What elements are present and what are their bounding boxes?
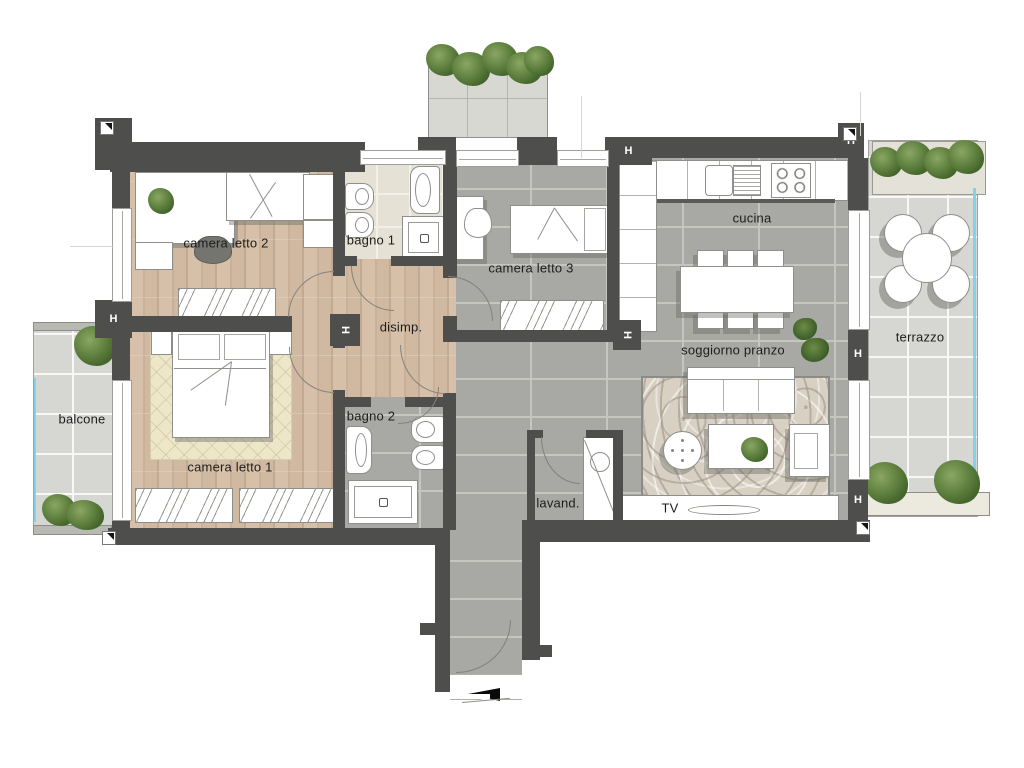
balcone-glass-railing [34, 378, 36, 522]
room-label-camera-letto-3: camera letto 3 [488, 261, 573, 276]
wall-top-left-wing [110, 142, 365, 172]
toilet-icon [345, 183, 374, 210]
bidet-icon [411, 445, 445, 470]
steel-column-icon: H [613, 320, 641, 350]
pillow-icon [584, 208, 606, 251]
pillow-icon [224, 334, 266, 360]
sofa-cushion-divider [758, 380, 759, 411]
armchair-icon [789, 424, 830, 477]
wall-left-mid [112, 338, 130, 380]
wall-bagno1-east [443, 150, 457, 278]
steel-column-icon: H [605, 137, 652, 165]
room-label-bagno-1: bagno 1 [347, 233, 395, 248]
terrazzo-bush-icon [864, 462, 908, 504]
wall-entrance-east [522, 520, 540, 660]
shower-icon [402, 216, 445, 259]
room-label-camera-letto-1: camera letto 1 [187, 460, 272, 475]
wall-stub-outside [540, 645, 552, 657]
window [112, 208, 132, 302]
nightstand-icon [303, 174, 335, 220]
bathroom-sink-icon [410, 166, 440, 214]
wall-column-top [517, 137, 557, 165]
room-label-tv: TV [661, 501, 678, 516]
room-label-soggiorno-pranzo: soggiorno pranzo [681, 343, 785, 358]
room-label-balcone: balcone [59, 412, 106, 427]
room-label-bagno-2: bagno 2 [347, 409, 395, 424]
section-marker-icon [856, 521, 870, 535]
nightstand-icon [151, 330, 172, 355]
sofa-cushion-divider [723, 380, 724, 411]
floor-plan: H H H H H H H camera letto 2 bagno 1 cam… [0, 0, 1024, 768]
wall-camera3-south [443, 330, 619, 342]
construction-line [581, 96, 582, 158]
room-label-camera-letto-2: camera letto 2 [183, 236, 268, 251]
wall-partition-bedrooms [112, 316, 292, 332]
wall-stub-outside [420, 623, 435, 635]
wall-south-left-wing [108, 528, 448, 545]
wall-east-a [848, 158, 868, 210]
wall-entrance-west [435, 528, 450, 692]
section-marker-icon [100, 121, 114, 135]
window [360, 150, 446, 165]
wall-camera1-east-b [333, 390, 345, 532]
room-label-disimpegno: disimp. [380, 320, 423, 335]
construction-line [70, 246, 114, 247]
section-marker-icon [102, 531, 116, 545]
wall-corridor-west [443, 393, 456, 530]
sheet-line [174, 368, 266, 369]
stove-icon [771, 163, 811, 198]
room-label-lavanderia: lavand. [536, 496, 579, 511]
bathroom-sink-icon [346, 426, 372, 474]
desk-plant-icon [148, 188, 174, 214]
wall-lavand-west [527, 430, 535, 522]
counter-edge [655, 199, 835, 203]
pillow-icon [178, 334, 220, 360]
window [557, 150, 609, 167]
terrazzo-hedge-icon [948, 140, 984, 174]
steel-column-icon: H [848, 328, 868, 380]
wall-bagno1-south-a [333, 256, 357, 266]
terrazzo-table-icon [902, 233, 952, 283]
steel-column-icon: H [95, 300, 132, 338]
tall-cabinet-icon [619, 160, 657, 332]
shower-icon [348, 480, 418, 524]
terrace-door-window [848, 380, 870, 480]
sink-drainer-icon [733, 165, 761, 196]
wall-south-right-wing [523, 520, 870, 542]
window [456, 150, 519, 167]
desk-return-icon [135, 242, 173, 270]
room-label-terrazzo: terrazzo [896, 330, 945, 345]
single-bed-icon [226, 172, 310, 221]
tv-icon [688, 505, 760, 515]
terrazzo-glass-railing [973, 188, 976, 515]
balcone-parapet-bottom [33, 525, 112, 535]
wardrobe-icon [135, 488, 233, 523]
steel-column-icon: H [330, 314, 360, 346]
kitchen-sink-icon [705, 165, 733, 196]
terrace-door-window [848, 210, 870, 330]
wardrobe-icon [500, 300, 604, 333]
wardrobe-icon [239, 488, 335, 523]
wall-left-stub [112, 172, 130, 208]
desk-chair-icon [464, 208, 492, 238]
table-plant-icon [741, 437, 768, 462]
side-table-icon [663, 431, 702, 470]
wall-lavand-north-b [586, 430, 616, 438]
balcone-bush-icon [66, 500, 104, 530]
steel-column-icon: H [848, 478, 868, 522]
wall-bagno2-north-a [333, 397, 371, 407]
room-label-cucina: cucina [733, 211, 772, 226]
cabinet-icon [303, 220, 335, 248]
balcony-door-window [112, 380, 132, 521]
wall-bagno1-south-b [391, 256, 443, 266]
armchair-seat [794, 433, 818, 469]
wall-lavand-east [613, 430, 623, 520]
section-marker-icon [843, 127, 857, 141]
wall-camera3-cucina [607, 158, 619, 330]
construction-line [860, 92, 861, 136]
dining-table-icon [680, 266, 794, 313]
sofa-back [688, 368, 794, 380]
sofa-icon [687, 367, 795, 414]
planter-shrub-icon [524, 46, 554, 76]
